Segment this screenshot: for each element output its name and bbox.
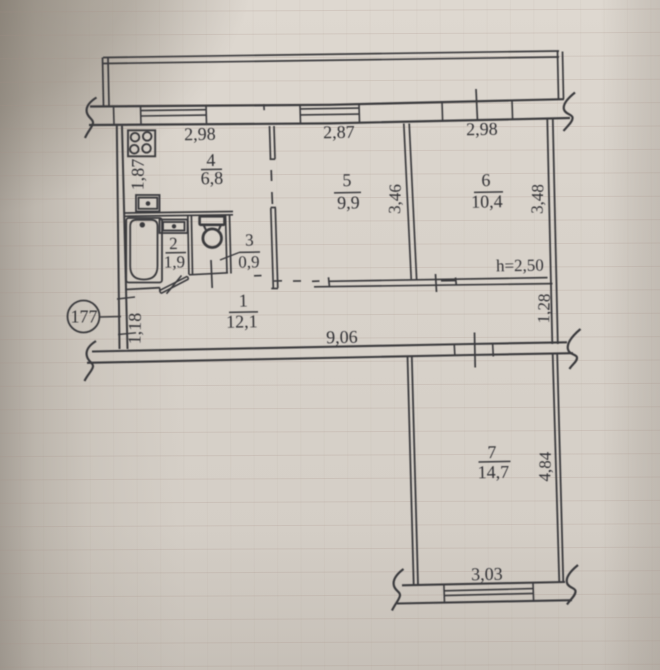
svg-text:7: 7 xyxy=(487,442,496,462)
svg-text:1,18: 1,18 xyxy=(124,313,145,345)
svg-text:1: 1 xyxy=(239,290,248,310)
svg-text:6: 6 xyxy=(481,170,490,190)
svg-text:1,9: 1,9 xyxy=(164,252,186,271)
svg-text:10,4: 10,4 xyxy=(471,191,503,212)
svg-text:3,03: 3,03 xyxy=(471,564,503,585)
svg-text:1,87: 1,87 xyxy=(127,159,148,191)
svg-text:h=2,50: h=2,50 xyxy=(496,256,544,276)
svg-text:4,84: 4,84 xyxy=(535,451,555,482)
svg-text:3,48: 3,48 xyxy=(528,184,548,214)
svg-text:0,9: 0,9 xyxy=(238,252,260,271)
svg-text:3,46: 3,46 xyxy=(385,184,405,214)
svg-text:14,7: 14,7 xyxy=(477,462,509,483)
svg-text:2,98: 2,98 xyxy=(184,124,216,145)
svg-text:2,98: 2,98 xyxy=(466,119,498,140)
svg-text:1,28: 1,28 xyxy=(534,293,554,323)
svg-text:12,1: 12,1 xyxy=(226,311,258,332)
svg-text:2,87: 2,87 xyxy=(323,122,355,143)
svg-text:2: 2 xyxy=(169,234,178,253)
svg-text:3: 3 xyxy=(245,230,254,249)
svg-text:5: 5 xyxy=(342,170,351,190)
svg-text:9,9: 9,9 xyxy=(337,192,360,212)
svg-text:6,8: 6,8 xyxy=(200,168,223,188)
svg-text:9,06: 9,06 xyxy=(326,327,358,348)
svg-text:177: 177 xyxy=(71,307,98,327)
